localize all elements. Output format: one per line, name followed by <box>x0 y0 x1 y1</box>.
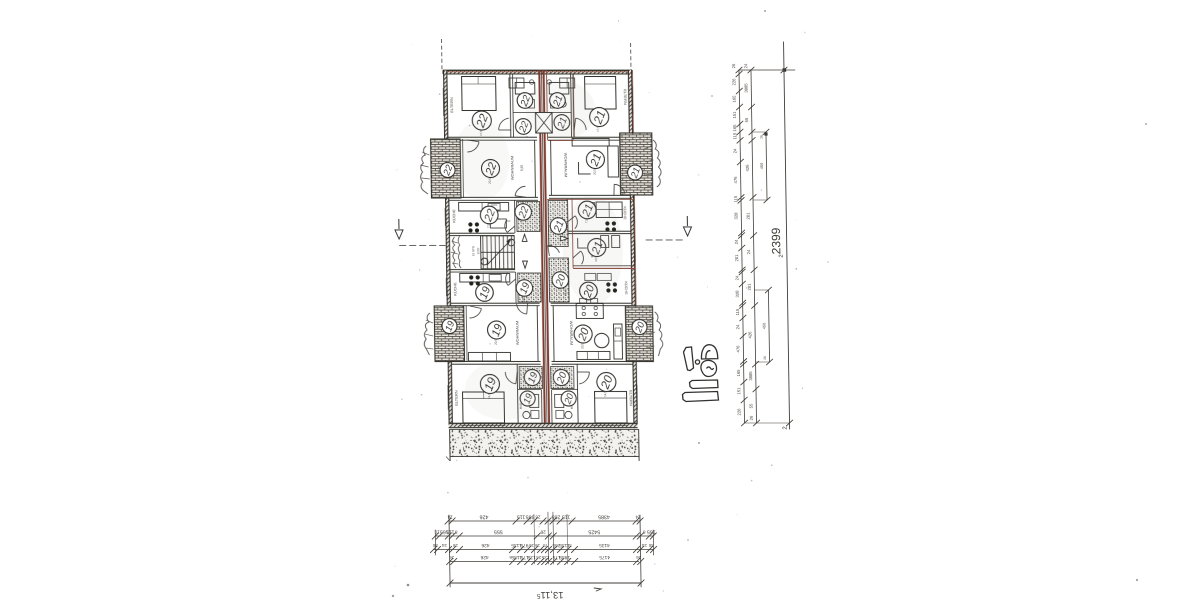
svg-text:7,5: 7,5 <box>486 224 490 229</box>
svg-text:328: 328 <box>735 290 740 298</box>
svg-text:201: 201 <box>747 283 752 291</box>
svg-text:4385: 4385 <box>598 514 610 520</box>
svg-text:17,5: 17,5 <box>596 126 600 132</box>
svg-text:KÜCHE: KÜCHE <box>624 281 628 295</box>
svg-text:ELTERN: ELTERN <box>629 390 634 406</box>
svg-text:201: 201 <box>734 254 739 262</box>
svg-text:450: 450 <box>759 162 764 169</box>
svg-text:3885: 3885 <box>743 83 748 93</box>
svg-text:24: 24 <box>734 275 739 280</box>
svg-text:115: 115 <box>562 514 571 520</box>
svg-text:24: 24 <box>641 543 646 548</box>
svg-text:20,5: 20,5 <box>494 339 498 345</box>
svg-text:5425: 5425 <box>588 529 600 535</box>
svg-text:24: 24 <box>746 249 751 254</box>
svg-text:115: 115 <box>446 529 455 535</box>
svg-text:26: 26 <box>760 135 764 139</box>
svg-text:KÜCHE: KÜCHE <box>452 209 456 223</box>
svg-text:426: 426 <box>745 164 750 172</box>
svg-text:4135: 4135 <box>599 542 610 548</box>
svg-text:24: 24 <box>732 148 737 153</box>
svg-text:WOHNRAUM: WOHNRAUM <box>569 321 574 345</box>
svg-text:26: 26 <box>536 555 541 560</box>
svg-text:26: 26 <box>535 515 541 520</box>
svg-text:151: 151 <box>732 111 737 119</box>
svg-text:WOHNRAUM: WOHNRAUM <box>563 153 568 177</box>
svg-text:88: 88 <box>648 543 653 548</box>
svg-text:2399: 2399 <box>769 227 783 254</box>
svg-text:476: 476 <box>735 345 740 353</box>
svg-text:26: 26 <box>528 543 533 548</box>
svg-text:ELTERN: ELTERN <box>449 97 454 113</box>
svg-text:165: 165 <box>647 529 656 535</box>
svg-text:165: 165 <box>732 124 737 132</box>
svg-text:KÜCHE: KÜCHE <box>623 206 627 220</box>
svg-text:476: 476 <box>733 176 738 184</box>
svg-text:24: 24 <box>734 239 739 244</box>
svg-text:3885: 3885 <box>748 371 753 381</box>
svg-text:555: 555 <box>494 529 503 535</box>
svg-text:55: 55 <box>749 403 754 408</box>
svg-text:WOHNRAUM: WOHNRAUM <box>514 321 519 345</box>
svg-text:26: 26 <box>763 356 767 360</box>
svg-text:201: 201 <box>746 212 751 220</box>
svg-text:175: 175 <box>520 554 528 560</box>
svg-text:1135: 1135 <box>511 542 522 548</box>
svg-text:1935: 1935 <box>559 554 570 560</box>
svg-text:26: 26 <box>749 415 754 420</box>
svg-text:151: 151 <box>736 387 741 395</box>
svg-text:20,5: 20,5 <box>580 343 584 349</box>
svg-text:165: 165 <box>736 369 741 377</box>
svg-text:WOHNRAUM: WOHNRAUM <box>509 156 514 180</box>
svg-text:426: 426 <box>747 331 752 339</box>
svg-text:14,5: 14,5 <box>603 391 607 397</box>
svg-text:26: 26 <box>731 63 736 68</box>
svg-text:75: 75 <box>542 543 547 548</box>
svg-text:16 STG: 16 STG <box>471 245 475 256</box>
svg-text:426: 426 <box>481 542 489 548</box>
svg-text:ELTERN: ELTERN <box>623 89 628 105</box>
svg-text:4175: 4175 <box>599 554 610 560</box>
svg-text:05/42: 05/42 <box>563 288 567 296</box>
svg-text:KÜCHE: KÜCHE <box>453 282 457 296</box>
svg-text:426: 426 <box>480 554 488 560</box>
svg-text:1135: 1135 <box>559 542 570 548</box>
svg-text:20,5: 20,5 <box>593 169 597 175</box>
svg-text:426: 426 <box>479 514 488 520</box>
svg-text:115: 115 <box>517 514 526 520</box>
svg-text:226: 226 <box>736 408 741 416</box>
svg-text:26: 26 <box>636 555 641 560</box>
svg-text:226: 226 <box>731 78 736 86</box>
svg-text:13,115: 13,115 <box>536 589 563 600</box>
svg-text:985: 985 <box>525 514 534 520</box>
svg-text:26: 26 <box>540 530 546 535</box>
svg-text:1185: 1185 <box>511 554 522 560</box>
svg-text:24: 24 <box>441 543 446 548</box>
svg-text:115: 115 <box>735 308 740 315</box>
svg-text:115: 115 <box>732 132 737 139</box>
svg-text:17/27: 17/27 <box>476 247 480 254</box>
svg-text:26: 26 <box>452 543 457 548</box>
svg-text:450: 450 <box>761 322 766 329</box>
svg-text:115: 115 <box>733 195 738 202</box>
svg-text:05/42: 05/42 <box>522 296 526 304</box>
svg-text:5,95: 5,95 <box>520 165 524 171</box>
svg-text:26: 26 <box>534 543 539 548</box>
svg-text:24: 24 <box>735 324 740 329</box>
svg-text:ELTERN: ELTERN <box>454 390 459 406</box>
svg-text:328: 328 <box>733 212 738 220</box>
svg-text:55: 55 <box>744 117 749 122</box>
svg-text:24: 24 <box>743 63 748 68</box>
svg-text:975: 975 <box>520 542 528 548</box>
svg-text:165: 165 <box>732 95 737 103</box>
svg-text:24: 24 <box>447 515 453 520</box>
